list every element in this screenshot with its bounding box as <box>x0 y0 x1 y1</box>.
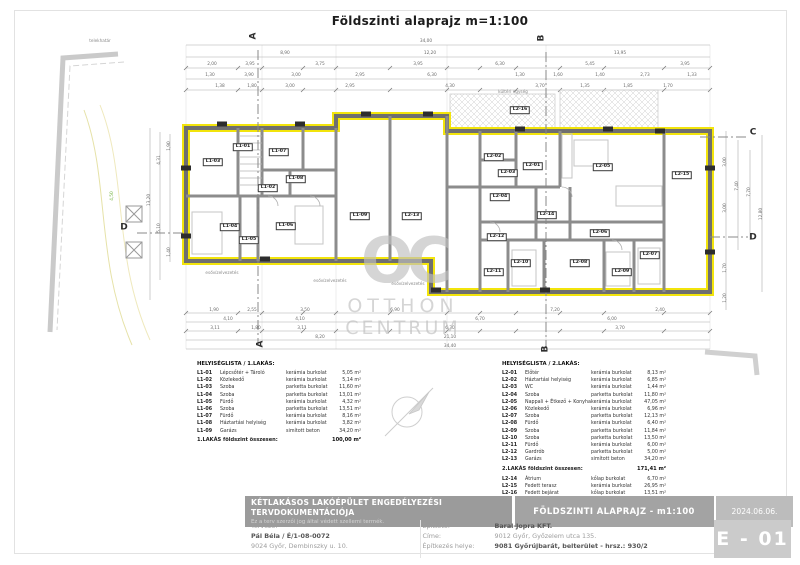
dimension-label: 7,70 <box>748 187 752 197</box>
dimension-label: 1,33 <box>687 74 697 78</box>
designer-label: Tervező: <box>251 522 411 532</box>
room-list-row: L2-01Előtérkerámia burkolat8,13 m² <box>502 370 672 377</box>
dimension-label: 3,50 <box>300 309 310 313</box>
room-tag: L2-05 <box>593 163 613 171</box>
room-list-apartment2: HELYISÉGLISTA / 2.LAKÁS:L2-01Előtérkerám… <box>502 361 672 497</box>
room-tag: L2-03 <box>498 169 518 177</box>
dimension-label: 21,10 <box>444 336 456 340</box>
plan-note: kültéri egység <box>498 90 528 94</box>
opening-tag <box>431 288 441 293</box>
dimension-label: 8,90 <box>280 52 290 56</box>
dimension-label: 2,95 <box>345 85 355 89</box>
designer-name: Pál Béla / É/1-08-0072 <box>251 532 411 542</box>
opening-tag <box>540 288 550 293</box>
dimension-label: 2,40 <box>655 309 665 313</box>
room-list-row: L2-11Fürdőkerámia burkolat6,00 m² <box>502 442 672 449</box>
room-tag: L1-07 <box>269 148 289 156</box>
dimension-label: 3,95 <box>245 63 255 67</box>
north-arrow-icon <box>385 388 433 436</box>
section-marker: B <box>542 346 551 353</box>
room-list-row: L1-04Szobaparketta burkolat13,01 m² <box>197 392 367 399</box>
dimension-label: 2,95 <box>355 74 365 78</box>
dimension-label: 2,55 <box>247 309 257 313</box>
plan-note: esővízelvezetés <box>391 282 424 286</box>
designer-address: 9024 Győr, Dembinszky u. 10. <box>251 542 411 552</box>
dimension-label: 3,00 <box>724 203 728 213</box>
room-tag: L2-04 <box>490 193 510 201</box>
room-list-row: L2-09Szobaparketta burkolat11,84 m² <box>502 428 672 435</box>
room-tag: L2-01 <box>523 162 543 170</box>
room-tag: L2-13 <box>402 212 422 220</box>
dimension-label: 1,35 <box>580 85 590 89</box>
room-list-row: L2-04Szobaparketta burkolat11,80 m² <box>502 392 672 399</box>
dimension-label: 1,90 <box>209 309 219 313</box>
dimension-label: 1,20 <box>724 293 728 303</box>
room-tag: L1-02 <box>258 184 278 192</box>
room-tag: L2-11 <box>484 268 504 276</box>
room-tag: L1-09 <box>350 212 370 220</box>
room-list-row: L2-02Háztartási helyiségkerámia burkolat… <box>502 377 672 384</box>
room-tag: L1-08 <box>286 175 306 183</box>
room-list-row: L2-12Gardróbparketta burkolat5,00 m² <box>502 449 672 456</box>
room-list-row: L2-10Szobaparketta burkolat13,50 m² <box>502 435 672 442</box>
client-name: Baral-Jopra KFT. <box>495 522 710 532</box>
room-tag: L2-08 <box>570 259 590 267</box>
room-tag: L2-14 <box>537 211 557 219</box>
dimension-label: 5,45 <box>585 63 595 67</box>
room-list-row: L2-13Garázssimított beton34,20 m² <box>502 456 672 463</box>
section-marker: A <box>250 33 259 40</box>
dimension-label: 8,20 <box>315 336 325 340</box>
room-list-total: 2.LAKÁS földszint összesen:171,41 m² <box>502 466 672 473</box>
dimension-label: 1,90 <box>168 141 172 151</box>
site-label: Építkezés helye: <box>423 542 495 552</box>
canopy-hatch <box>450 94 555 130</box>
room-list-row: L2-05Nappali + Étkező + Konyhakerámia bu… <box>502 399 672 406</box>
room-list-row: L1-08Háztartási helyiségkerámia burkolat… <box>197 420 367 427</box>
room-tag: L2-10 <box>511 259 531 267</box>
client-address-label: Címe: <box>423 532 495 542</box>
dimension-label: 13,95 <box>614 52 626 56</box>
room-tag: L1-05 <box>239 236 259 244</box>
drawing-sheet: Földszinti alaprajz m=1:100 <box>0 0 800 565</box>
room-list-row: L1-01Lépcsőtér + Tárolókerámia burkolat5… <box>197 370 367 377</box>
room-tag: L2-15 <box>672 171 692 179</box>
dimension-label: 3,95 <box>680 63 690 67</box>
dimension-label: 1,85 <box>623 85 633 89</box>
dimension-label: 3,11 <box>210 327 220 331</box>
dimension-label: 6,00 <box>607 318 617 322</box>
room-tag: L2-16 <box>510 106 530 114</box>
dimension-label: 3,11 <box>297 327 307 331</box>
dimension-label: 1,60 <box>553 74 563 78</box>
dimension-label: 4,10 <box>295 318 305 322</box>
dimension-label: 1,70 <box>724 263 728 273</box>
opening-tag <box>361 112 371 117</box>
dimension-label: 5,10 <box>158 223 162 233</box>
site-value: 9081 Győrújbarát, belterület - hrsz.: 93… <box>495 542 710 552</box>
opening-tag <box>655 129 665 134</box>
client-cell: Építtető: Baral-Jopra KFT. Címe: 9012 Gy… <box>420 520 712 558</box>
room-list-title: HELYISÉGLISTA / 1.LAKÁS: <box>197 361 367 367</box>
room-list-row: L2-15Fedett teraszkerámia burkolat26,95 … <box>502 483 672 490</box>
section-marker: D <box>120 224 127 233</box>
sheet-number: E - 01 <box>714 520 791 558</box>
plan-note: esővízelvezetés <box>205 271 238 275</box>
room-list-row: L1-07Fürdőkerámia burkolat8,16 m² <box>197 413 367 420</box>
dimension-label: 1,80 <box>251 327 261 331</box>
dimension-label: 1,30 <box>205 74 215 78</box>
opening-tag <box>295 122 305 127</box>
dimension-label: 34,00 <box>420 40 432 44</box>
opening-tag <box>181 234 191 239</box>
dimension-label: 6,30 <box>427 74 437 78</box>
room-tag: L2-12 <box>487 233 507 241</box>
dimension-label: 3,75 <box>315 63 325 67</box>
project-title: KÉTLAKÁSOS LAKÓÉPÜLET ENGEDÉLYEZÉSI TERV… <box>251 498 506 519</box>
dimension-label: 4,30 <box>445 85 455 89</box>
dimension-label: 1,40 <box>595 74 605 78</box>
dimension-label: 4,50 <box>111 191 115 201</box>
dimension-label: 3,70 <box>535 85 545 89</box>
opening-tag <box>260 257 270 262</box>
room-tag: L2-07 <box>640 251 660 259</box>
section-marker: D <box>749 234 756 243</box>
room-list-row: L1-06Szobaparketta burkolat13,51 m² <box>197 406 367 413</box>
room-list-title: HELYISÉGLISTA / 2.LAKÁS: <box>502 361 672 367</box>
opening-tag <box>515 127 525 132</box>
room-list-row: L2-03WCkerámia burkolat1,44 m² <box>502 384 672 391</box>
plan-note: telekhatár <box>89 39 111 43</box>
dimension-label: 3,95 <box>413 63 423 67</box>
dimension-label: 12,20 <box>424 52 436 56</box>
dimension-label: 3,00 <box>285 85 295 89</box>
dimension-label: 3,90 <box>244 74 254 78</box>
dimension-label: 1,40 <box>168 247 172 257</box>
dimension-label: 1,70 <box>663 85 673 89</box>
dimension-label: 12,80 <box>760 208 764 220</box>
opening-tag <box>181 166 191 171</box>
title-block: KÉTLAKÁSOS LAKÓÉPÜLET ENGEDÉLYEZÉSI TERV… <box>245 496 796 558</box>
room-list-row: L2-06Közlekedőkerámia burkolat6,96 m² <box>502 406 672 413</box>
dimension-label: 1,38 <box>215 85 225 89</box>
designer-cell: Tervező: Pál Béla / É/1-08-0072 9024 Győ… <box>245 520 417 558</box>
opening-tag <box>603 127 613 132</box>
room-tag: L2-02 <box>484 153 504 161</box>
opening-tag <box>705 166 715 171</box>
room-tag: L2-06 <box>590 229 610 237</box>
room-list-row: L2-14Átriumkőlap burkolat6,70 m² <box>502 476 672 483</box>
room-list-apartment1: HELYISÉGLISTA / 1.LAKÁS:L1-01Lépcsőtér +… <box>197 361 367 447</box>
dimension-label: 6,70 <box>475 318 485 322</box>
dimension-label: 6,30 <box>495 63 505 67</box>
room-tag: L1-06 <box>276 222 296 230</box>
section-marker: B <box>538 35 547 42</box>
pergola-hatch <box>560 90 658 130</box>
section-marker: C <box>750 129 757 138</box>
dimension-label: 7,20 <box>550 309 560 313</box>
dimension-label: 3,00 <box>291 74 301 78</box>
room-tag: L1-04 <box>220 223 240 231</box>
dimension-label: 13,20 <box>148 194 152 206</box>
room-tag: L2-09 <box>612 268 632 276</box>
dimension-label: 1,30 <box>515 74 525 78</box>
opening-tag <box>423 112 433 117</box>
dimension-label: 2,00 <box>207 63 217 67</box>
opening-tag <box>705 250 715 255</box>
room-tag: L1-03 <box>203 158 223 166</box>
room-list-row: L1-09Garázssimított beton34,20 m² <box>197 428 367 435</box>
room-list-row: L2-07Szobaparketta burkolat12,13 m² <box>502 413 672 420</box>
room-list-row: L1-05Fürdőkerámia burkolat4,32 m² <box>197 399 367 406</box>
room-list-row: L2-08Fürdőkerámia burkolat6,40 m² <box>502 420 672 427</box>
dimension-label: 2,73 <box>640 74 650 78</box>
dimension-label: 1,80 <box>247 85 257 89</box>
dimension-label: 4,10 <box>223 318 233 322</box>
dimension-label: 6,90 <box>390 309 400 313</box>
property-line <box>50 54 118 332</box>
room-list-row: L1-02Közlekedőkerámia burkolat5,14 m² <box>197 377 367 384</box>
dimension-label: 6,30 <box>445 327 455 331</box>
client-address: 9012 Győr, Győzelem utca 135. <box>495 532 710 542</box>
dimension-label: 34,40 <box>444 345 456 349</box>
room-list-total: 1.LAKÁS földszint összesen:100,00 m² <box>197 437 367 444</box>
dimension-label: 7,40 <box>736 181 740 191</box>
dimension-label: 3,70 <box>615 327 625 331</box>
room-list-row: L1-03Szobaparketta burkolat11,60 m² <box>197 384 367 391</box>
room-tag: L1-01 <box>233 143 253 151</box>
client-label: Építtető: <box>423 522 495 532</box>
opening-tag <box>217 122 227 127</box>
dimension-label: 4,31 <box>158 155 162 165</box>
section-marker: A <box>257 341 266 348</box>
plan-note: esővízelvezetés <box>313 279 346 283</box>
dimension-label: 3,00 <box>724 157 728 167</box>
